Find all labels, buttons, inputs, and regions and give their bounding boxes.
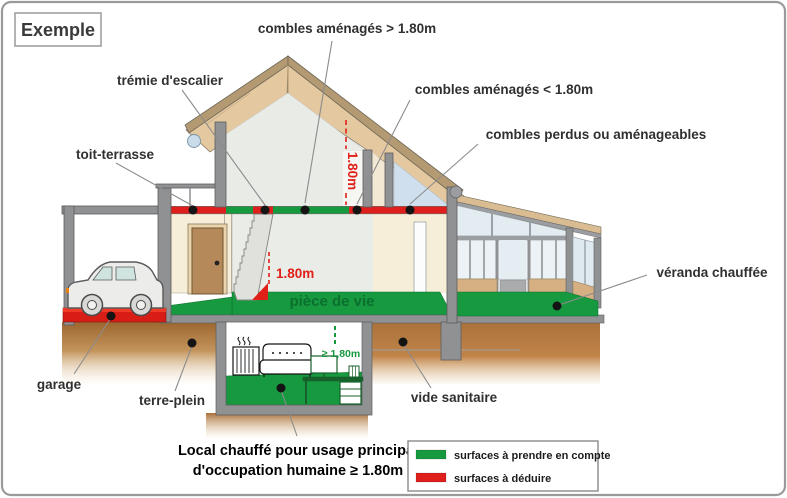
dimension-basement-height: ≥ 1,80m bbox=[322, 348, 360, 360]
diagram-canvas: combles aménagés > 1.80m trémie d'escali… bbox=[0, 0, 787, 498]
legend-swatch-count bbox=[416, 450, 446, 459]
ground-floor bbox=[171, 213, 447, 296]
leader-dot-combles-perdus bbox=[406, 206, 415, 215]
car-window-rear bbox=[116, 267, 136, 280]
band-combles-sup-green bbox=[273, 207, 349, 214]
leader-dot-veranda bbox=[553, 302, 562, 311]
house-section-diagram: combles aménagés > 1.80m trémie d'escali… bbox=[0, 0, 787, 498]
leader-dot-combles-sup bbox=[301, 206, 310, 215]
label-veranda: véranda chauffée bbox=[656, 265, 768, 280]
car-headlight bbox=[66, 288, 69, 293]
soil-crawl-space bbox=[372, 322, 600, 384]
veranda-floor bbox=[447, 292, 598, 316]
veranda-far-post bbox=[594, 238, 601, 308]
car-hub bbox=[88, 301, 97, 310]
label-combles-sup: combles aménagés > 1.80m bbox=[258, 21, 436, 36]
label-piece-de-vie: pièce de vie bbox=[289, 293, 374, 310]
label-garage: garage bbox=[37, 377, 82, 392]
entry-door bbox=[192, 228, 223, 294]
garage-beam bbox=[62, 206, 158, 214]
sliding-door-glass bbox=[500, 240, 526, 279]
legend: surfaces à prendre en compte surfaces à … bbox=[408, 441, 611, 491]
gutter-left bbox=[188, 135, 201, 148]
right-room-interior bbox=[373, 213, 447, 293]
sofa-icon bbox=[260, 344, 314, 377]
legend-swatch-deduct bbox=[416, 473, 446, 482]
right-wall-post bbox=[447, 187, 457, 323]
gable-right-post bbox=[363, 150, 372, 207]
label-local-chauffe-line2: d'occupation humaine ≥ 1.80m bbox=[193, 463, 403, 479]
label-tremie: trémie d'escalier bbox=[117, 73, 224, 88]
leader-dot-terre-plein bbox=[188, 339, 197, 348]
legend-label-count: surfaces à prendre en compte bbox=[454, 450, 611, 462]
veranda-corner-post bbox=[566, 228, 573, 296]
label-combles-perdus: combles perdus ou aménageables bbox=[486, 127, 707, 142]
terrace-railing bbox=[156, 184, 218, 188]
gutter-right bbox=[450, 186, 462, 198]
dimension-attic-height: 1.80m bbox=[345, 152, 360, 190]
soil-under-garage bbox=[62, 322, 218, 386]
label-toit-terrasse: toit-terrasse bbox=[76, 147, 155, 162]
veranda-transom bbox=[453, 236, 570, 240]
tall-window bbox=[414, 222, 426, 296]
sliding-door-panel bbox=[500, 280, 526, 293]
footing bbox=[441, 322, 461, 360]
leader-dot-combles-inf bbox=[353, 206, 362, 215]
dimension-stairs-height: 1.80m bbox=[276, 266, 314, 281]
leader-dot-toit-terrasse bbox=[189, 206, 198, 215]
legend-label-deduct: surfaces à déduire bbox=[454, 473, 551, 485]
attic-post bbox=[385, 153, 393, 207]
door-handle bbox=[215, 261, 220, 266]
leader-dot-garage bbox=[107, 312, 116, 321]
leader-dot-local-chauffe bbox=[277, 384, 286, 393]
leader-dot-tremie bbox=[261, 206, 270, 215]
soil-under-basement bbox=[206, 413, 368, 439]
band-toit-terrasse-red bbox=[171, 207, 226, 214]
gable-left-post bbox=[215, 122, 226, 207]
leader-dot-vide-sanitaire bbox=[399, 338, 408, 347]
label-combles-inf: combles aménagés < 1.80m bbox=[415, 82, 593, 97]
basement-room bbox=[216, 322, 372, 415]
label-terre-plein: terre-plein bbox=[139, 393, 205, 408]
label-vide-sanitaire: vide sanitaire bbox=[411, 390, 498, 405]
band-green bbox=[226, 207, 253, 214]
label-local-chauffe-line1: Local chauffé pour usage principal bbox=[178, 443, 418, 459]
example-badge: Exemple bbox=[15, 13, 101, 46]
car-hub bbox=[137, 301, 146, 310]
example-badge-text: Exemple bbox=[21, 20, 95, 40]
